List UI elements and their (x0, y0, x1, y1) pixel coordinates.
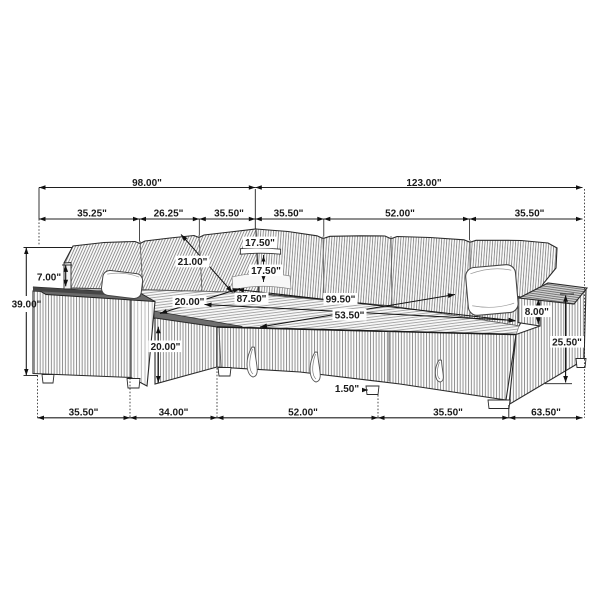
svg-text:35.50": 35.50" (214, 208, 244, 219)
svg-text:35.50": 35.50" (274, 208, 304, 219)
svg-text:1.50": 1.50" (335, 384, 359, 395)
svg-text:17.50": 17.50" (245, 238, 275, 249)
svg-text:52.00": 52.00" (385, 208, 415, 219)
svg-text:35.50": 35.50" (515, 208, 545, 219)
svg-text:63.50": 63.50" (531, 407, 561, 418)
svg-text:20.00": 20.00" (151, 342, 181, 353)
svg-text:26.25": 26.25" (154, 208, 184, 219)
svg-text:21.00": 21.00" (178, 257, 208, 268)
svg-text:98.00": 98.00" (132, 178, 162, 189)
svg-text:52.00": 52.00" (288, 407, 318, 418)
svg-text:17.50": 17.50" (251, 266, 281, 277)
svg-text:34.00": 34.00" (159, 407, 189, 418)
svg-text:99.50": 99.50" (326, 294, 356, 305)
svg-text:123.00": 123.00" (406, 178, 442, 189)
svg-text:20.00": 20.00" (175, 297, 205, 308)
svg-text:35.50": 35.50" (69, 407, 99, 418)
svg-text:8.00": 8.00" (525, 307, 549, 318)
svg-text:35.50": 35.50" (433, 407, 463, 418)
svg-text:7.00": 7.00" (37, 273, 61, 284)
svg-text:39.00": 39.00" (12, 299, 42, 310)
svg-text:87.50": 87.50" (237, 294, 267, 305)
svg-text:25.50": 25.50" (552, 337, 582, 348)
svg-text:53.50": 53.50" (335, 310, 365, 321)
svg-text:35.25": 35.25" (77, 208, 107, 219)
